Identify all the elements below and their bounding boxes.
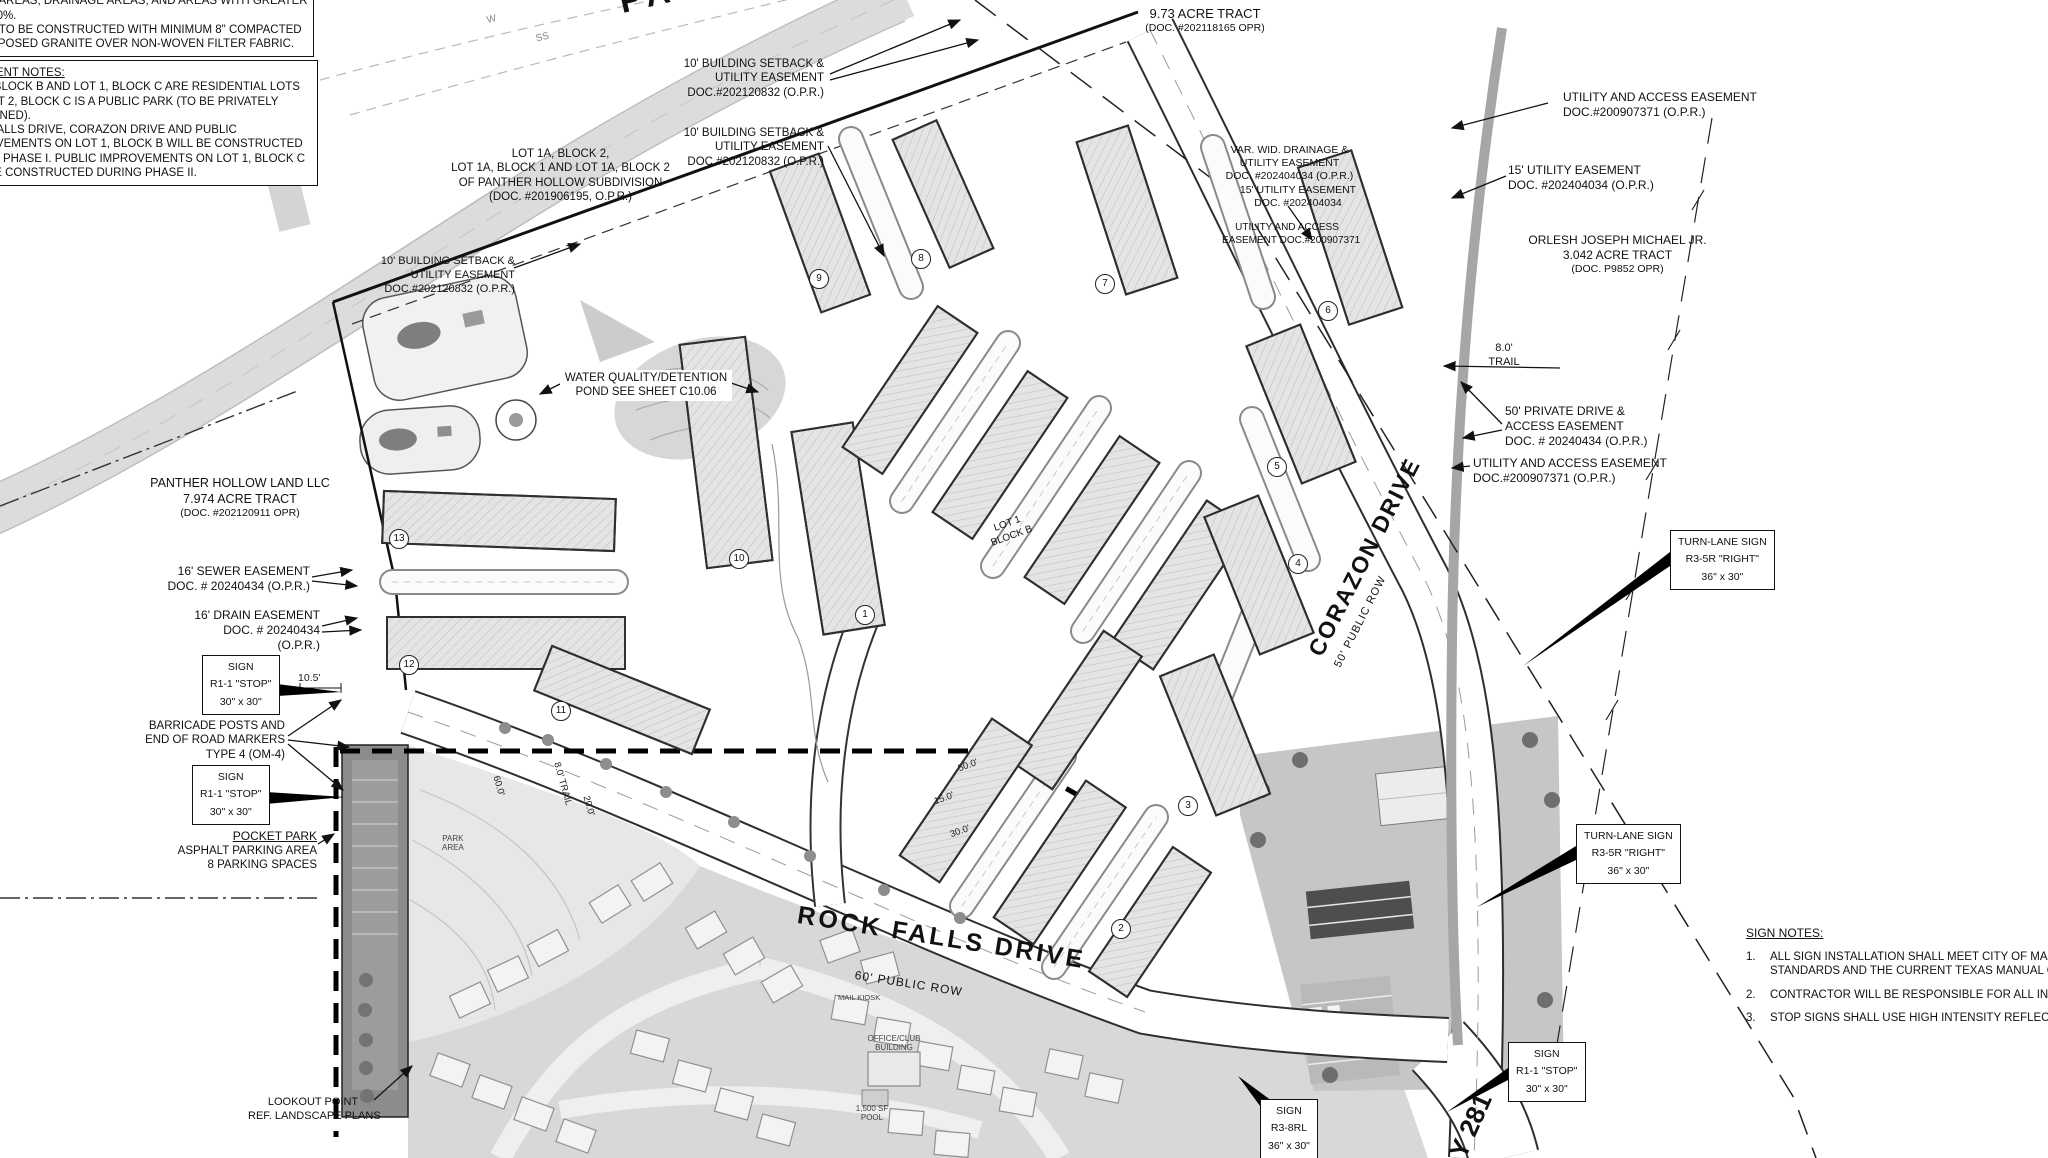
sign-note-2: 2. CONTRACTOR WILL BE RESPONSIBLE FOR AL… [1746, 988, 2048, 1002]
sign-notes-title: SIGN NOTES: [1746, 926, 2048, 941]
drain-easement-label: 16' DRAIN EASEMENT DOC. # 20240434 (O.P.… [135, 608, 320, 653]
building-number: 8 [911, 249, 931, 269]
lookout-point-label: LOOKOUT POINT REF. LANDSCAPE PLANS [248, 1096, 378, 1124]
pocket-park-label: POCKET PARK ASPHALT PARKING AREA 8 PARKI… [132, 829, 317, 873]
r3-8rl-sign-callout: SIGN R3-8RL 36" x 30" [1260, 1099, 1318, 1158]
stop-sign-callout-2: SIGN R1-1 "STOP" 30" x 30" [192, 765, 270, 825]
sign-note-3: 3. STOP SIGNS SHALL USE HIGH INTENSITY R… [1746, 1011, 2048, 1025]
park-area-label: PARK AREA [442, 834, 464, 852]
pavement-notes-title: VEMENT NOTES: [0, 66, 307, 80]
drainage-easement-label: VAR. WID. DRAINAGE & UTILITY EASEMENT DO… [1222, 144, 1357, 183]
private-drive-easement-label: 50' PRIVATE DRIVE & ACCESS EASEMENT DOC.… [1505, 404, 1648, 449]
oval-courtyard [358, 404, 482, 476]
pool-label: 1,500 SF POOL [850, 1104, 894, 1122]
dim-10-5: 10.5' [298, 672, 320, 685]
tract-973-label: 9.73 ACRE TRACT (DOC. #202118165 OPR) [1095, 6, 1315, 35]
tract-orlesh-label: ORLESH JOSEPH MICHAEL JR. 3.042 ACRE TRA… [1525, 233, 1710, 276]
trail-notes-box: CRETE IS TO BE INCORPORATED ON TRAILS WI… [0, 0, 314, 57]
sewer-easement-label: 16' SEWER EASEMENT DOC. # 20240434 (O.P.… [125, 564, 310, 594]
building-number: 2 [1111, 919, 1131, 939]
building-number: 5 [1267, 457, 1287, 477]
utility-access-easement-e-label: UTILITY AND ACCESS EASEMENT DOC.#2009073… [1473, 456, 1667, 486]
building-number: 7 [1095, 274, 1115, 294]
building-number: 3 [1178, 796, 1198, 816]
barricade-label: BARRICADE POSTS AND END OF ROAD MARKERS … [103, 719, 285, 762]
utility-15-easement-label: 15' UTILITY EASEMENT DOC. #202404034 (O.… [1508, 163, 1654, 193]
turn-lane-sign-callout-1: TURN-LANE SIGN R3-5R "RIGHT" 36" x 30" [1670, 530, 1775, 590]
sign-notes-block: SIGN NOTES: 1. ALL SIGN INSTALLATION SHA… [1746, 926, 2048, 1026]
building-number: 11 [551, 701, 571, 721]
stop-sign-callout-3: SIGN R1-1 "STOP" 30" x 30" [1508, 1042, 1586, 1102]
turn-lane-sign-callout-2: TURN-LANE SIGN R3-5R "RIGHT" 36" x 30" [1576, 824, 1681, 884]
building-number: 1 [855, 605, 875, 625]
utility-access-mid-label: UTILITY AND ACCESS EASEMENT DOC.#2009073… [1222, 222, 1352, 247]
sign-note-1: 1. ALL SIGN INSTALLATION SHALL MEET CITY… [1746, 950, 2048, 979]
setback-easement-n-label: 10' BUILDING SETBACK & UTILITY EASEMENT … [622, 126, 824, 169]
building-number: 6 [1318, 301, 1338, 321]
office-club-building-footprint [868, 1052, 920, 1086]
setback-easement-ne-label: 10' BUILDING SETBACK & UTILITY EASEMENT … [622, 57, 824, 100]
pavement-notes-box: VEMENT NOTES: T 1, BLOCK B AND LOT 1, BL… [0, 60, 318, 186]
building-number: 10 [729, 549, 749, 569]
utility-access-easement-ne-label: UTILITY AND ACCESS EASEMENT DOC.#2009073… [1563, 90, 1757, 120]
building-number: 12 [399, 655, 419, 675]
site-plan-sheet: CRETE IS TO BE INCORPORATED ON TRAILS WI… [0, 0, 2048, 1158]
building-number: 13 [389, 529, 409, 549]
building-number: 9 [809, 269, 829, 289]
building-number: 4 [1288, 554, 1308, 574]
tract-panther-hollow-label: PANTHER HOLLOW LAND LLC 7.974 ACRE TRACT… [125, 476, 355, 520]
water-quality-pond-label: WATER QUALITY/DETENTION POND SEE SHEET C… [560, 370, 732, 401]
mail-kiosk-label: MAIL KIOSK [838, 994, 880, 1003]
office-club-label: OFFICE/CLUB BUILDING [864, 1034, 924, 1052]
setback-easement-w-label: 10' BUILDING SETBACK & UTILITY EASEMENT … [350, 255, 515, 296]
utility-15-mid-label: 15' UTILITY EASEMENT DOC. #202404034 [1238, 184, 1358, 210]
trail-width-label: 8.0' TRAIL [1468, 342, 1540, 370]
stop-sign-callout-1: SIGN R1-1 "STOP" 30" x 30" [202, 655, 280, 715]
